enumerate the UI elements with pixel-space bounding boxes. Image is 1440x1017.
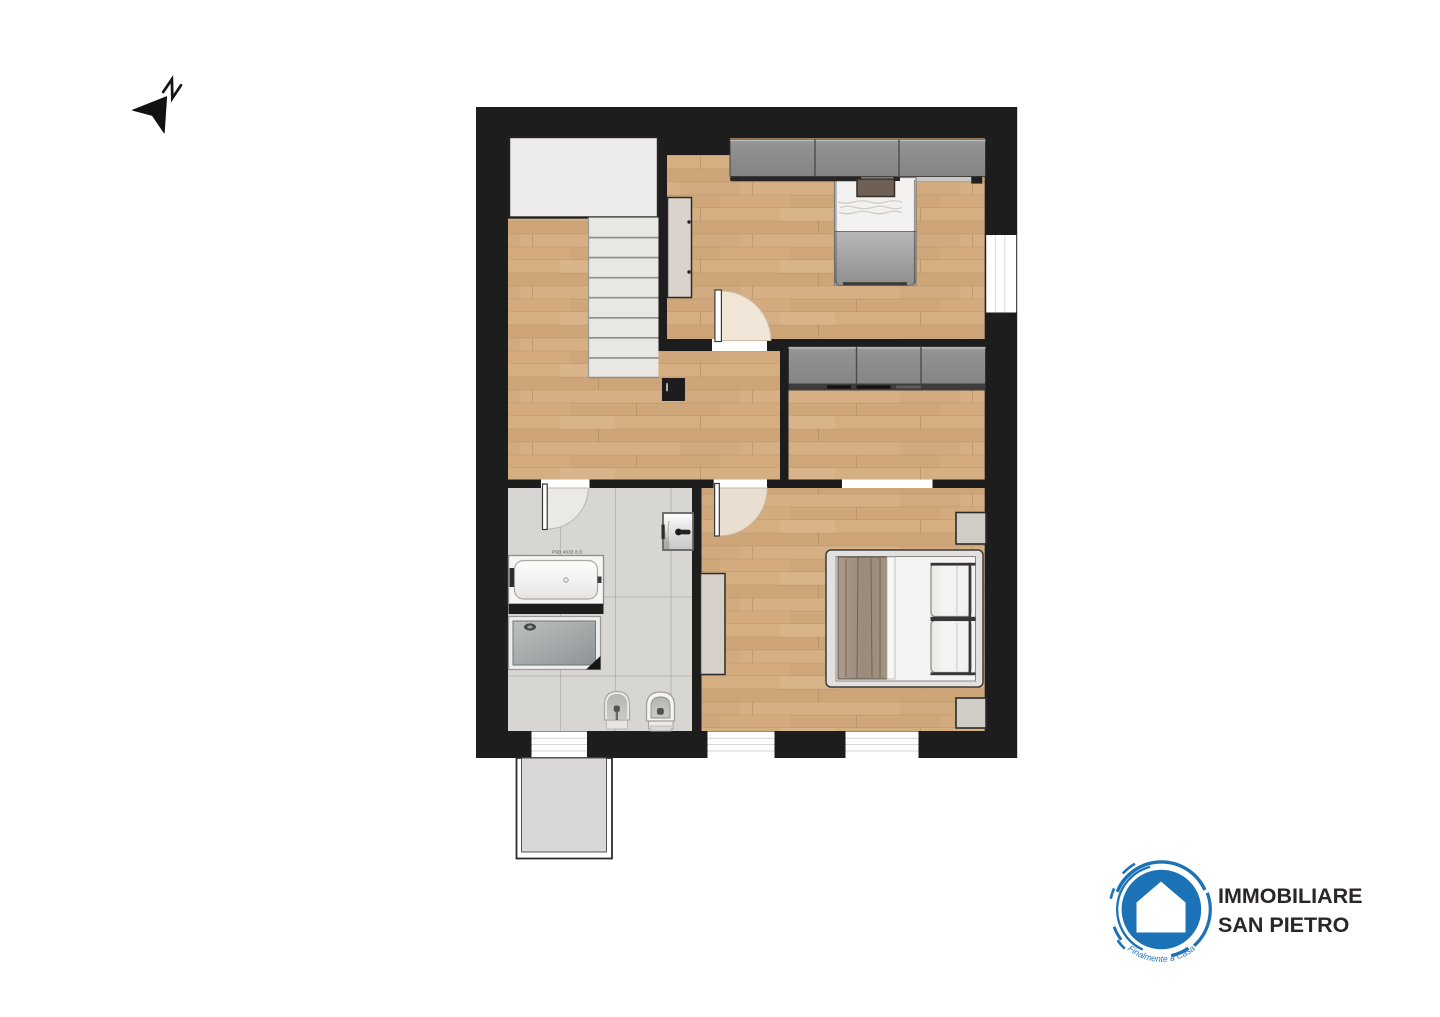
svg-text:IMMOBILIARE: IMMOBILIARE (1218, 884, 1363, 908)
svg-text:SAN PIETRO: SAN PIETRO (1218, 913, 1349, 937)
svg-text:P9D 4033 8 D: P9D 4033 8 D (552, 550, 583, 555)
